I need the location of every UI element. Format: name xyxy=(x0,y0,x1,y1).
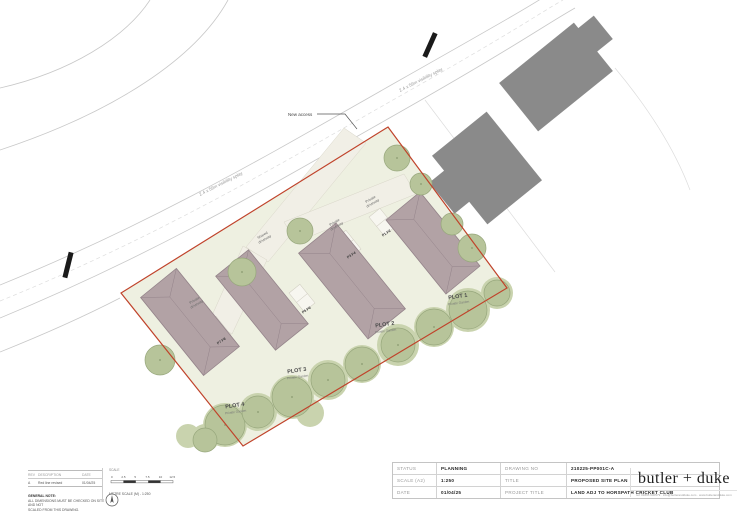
svg-text:7.5: 7.5 xyxy=(145,475,150,479)
status-value: PLANNING xyxy=(437,463,501,474)
svg-text:5: 5 xyxy=(134,475,136,479)
site-plan-drawing: 2.4 x 59m visibility splay 2.4 x 59m vis… xyxy=(0,0,738,460)
revision-row: A Red line revised 01/04/25 xyxy=(28,479,102,486)
scale-label: SCALE (A2) xyxy=(393,475,437,486)
rev-header-description: DESCRIPTION xyxy=(38,473,82,477)
visibility-splay-text-1: 2.4 x 59m visibility splay xyxy=(198,170,244,197)
project-title-label: PROJECT TITLE xyxy=(501,487,567,498)
scale-bar: 0 2.5 5 7.5 10 12.5 xyxy=(109,475,179,486)
bottom-strip: REV DESCRIPTION DATE A Red line revised … xyxy=(0,460,738,520)
firm-logo: butler + duke xyxy=(631,470,737,488)
scale-bar-heading: SCALE xyxy=(109,468,187,472)
general-note: GENERAL NOTE: ALL DIMENSIONS MUST BE CHE… xyxy=(28,494,108,512)
firm-contact: tel: 01865 600579 · info@butlerandduke.c… xyxy=(631,490,737,497)
drawing-no-label: DRAWING NO xyxy=(501,463,567,474)
scale-value: 1:250 xyxy=(437,475,501,486)
revision-table: REV DESCRIPTION DATE A Red line revised … xyxy=(28,470,102,487)
rev-header-date: DATE xyxy=(82,473,102,477)
firm-logo-block: butler + duke tel: 01865 600579 · info@b… xyxy=(630,468,737,497)
rev-description: Red line revised xyxy=(38,481,82,485)
site-plan-page: 2.4 x 59m visibility splay 2.4 x 59m vis… xyxy=(0,0,738,520)
status-label: STATUS xyxy=(393,463,437,474)
date-value: 01/04/25 xyxy=(437,487,501,498)
general-note-line2: SCALED FROM THIS DRAWING. xyxy=(28,508,108,513)
scale-bar-caption: METRE SCALE (M) - 1:250 xyxy=(109,492,187,496)
rev-date: 01/04/25 xyxy=(82,481,102,485)
existing-buildings xyxy=(429,16,613,225)
svg-text:12.5: 12.5 xyxy=(169,475,175,479)
new-access-label: New access xyxy=(288,112,313,117)
svg-text:2.5: 2.5 xyxy=(121,475,126,479)
north-arrow xyxy=(104,492,120,513)
svg-text:10: 10 xyxy=(159,475,163,479)
rev-header-rev: REV xyxy=(28,473,38,477)
general-note-line1: ALL DIMENSIONS MUST BE CHECKED ON SITE A… xyxy=(28,499,108,508)
visibility-splay-text-2: 2.4 x 59m visibility splay xyxy=(398,66,444,93)
rev-letter: A xyxy=(28,481,38,485)
title-label: TITLE xyxy=(501,475,567,486)
date-label: DATE xyxy=(393,487,437,498)
svg-text:0: 0 xyxy=(111,475,113,479)
